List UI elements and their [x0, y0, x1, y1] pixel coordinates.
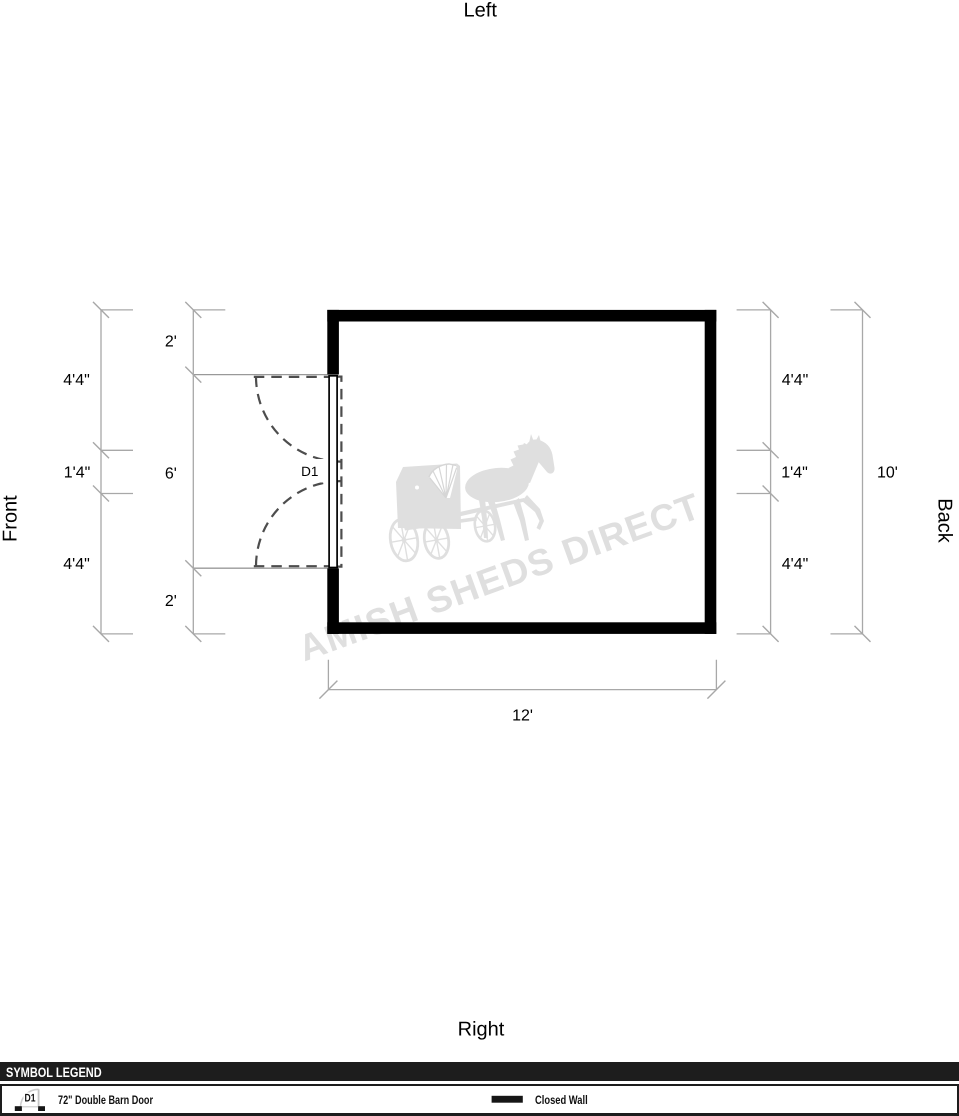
- svg-text:D1: D1: [25, 1093, 36, 1105]
